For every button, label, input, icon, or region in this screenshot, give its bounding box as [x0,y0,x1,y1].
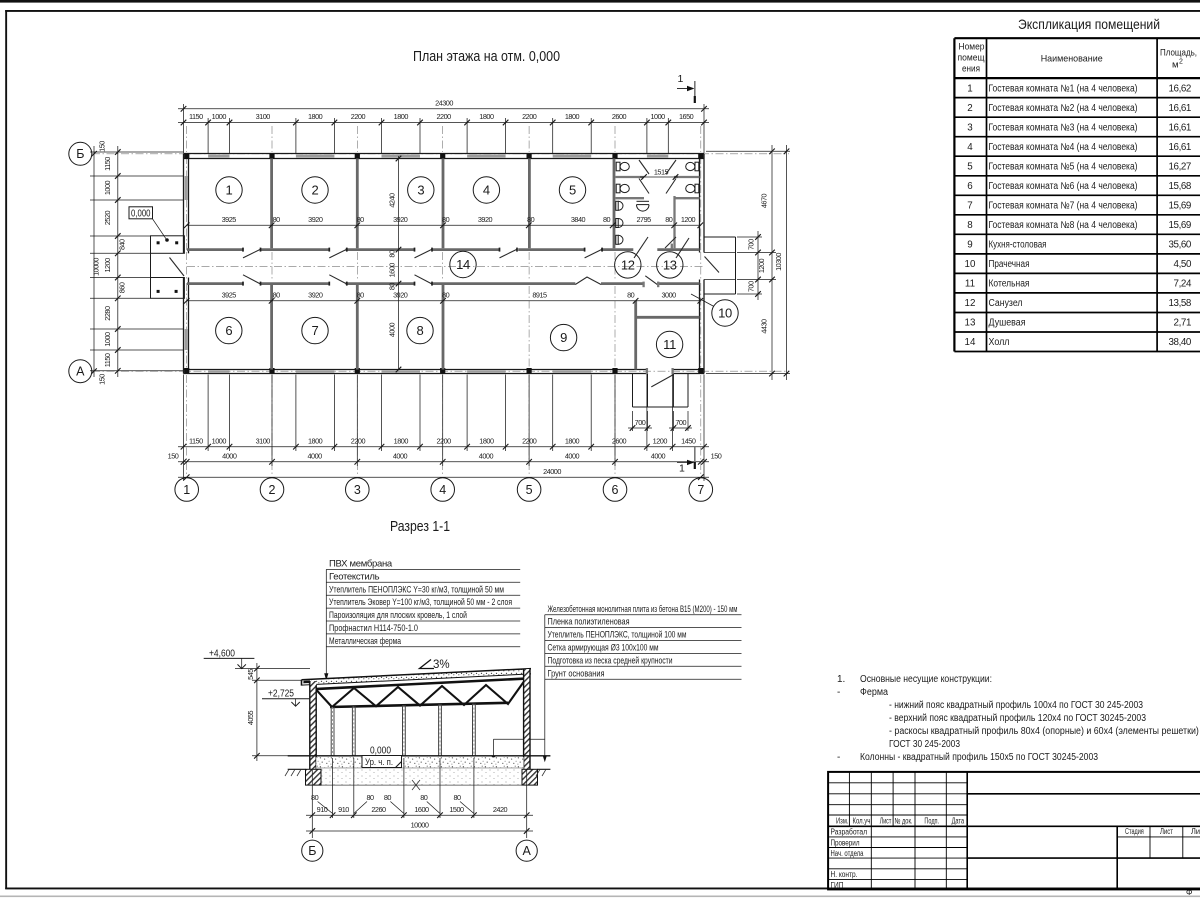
svg-text:1600: 1600 [414,805,429,814]
svg-text:150: 150 [98,374,107,385]
svg-text:4: 4 [439,483,446,497]
svg-text:1800: 1800 [565,436,580,445]
svg-text:1450: 1450 [681,436,696,445]
svg-text:9: 9 [967,240,972,251]
svg-text:80: 80 [627,291,635,300]
svg-text:16,27: 16,27 [1168,161,1191,172]
svg-text:2795: 2795 [636,215,651,224]
svg-text:А: А [523,844,532,858]
svg-text:12: 12 [621,258,635,273]
svg-text:2: 2 [967,103,972,114]
svg-text:1: 1 [679,463,685,475]
svg-text:10000: 10000 [411,821,429,830]
svg-text:4670: 4670 [760,193,769,208]
svg-text:Н. контр.: Н. контр. [831,870,858,879]
svg-text:545: 545 [246,669,255,680]
svg-text:Подготовка из песка средней кр: Подготовка из песка средней крупности [548,655,673,666]
svg-text:+2,725: +2,725 [268,689,294,700]
svg-text:80: 80 [384,793,392,802]
svg-text:5: 5 [526,483,533,497]
svg-text:1800: 1800 [565,112,580,121]
svg-text:2200: 2200 [522,112,537,121]
svg-text:А: А [76,365,85,379]
svg-text:Гостевая комната №5 (на 4 чело: Гостевая комната №5 (на 4 человека) [989,161,1138,172]
svg-text:3925: 3925 [222,291,237,300]
svg-text:Утеплитель Эковер Y=100 кг/м3,: Утеплитель Эковер Y=100 кг/м3, толщиной … [329,597,512,608]
svg-text:6: 6 [225,323,232,338]
svg-text:План этажа на отм. 0,000: План этажа на отм. 0,000 [413,48,560,65]
svg-text:Номер: Номер [959,42,985,53]
svg-text:Гостевая комната №3 (на 4 чело: Гостевая комната №3 (на 4 человека) [989,122,1138,133]
svg-text:ПВХ мембрана: ПВХ мембрана [329,559,393,570]
svg-text:8: 8 [967,220,973,231]
svg-text:4: 4 [483,183,490,198]
svg-text:0,000: 0,000 [131,209,151,220]
svg-text:4000: 4000 [651,452,666,461]
svg-text:10: 10 [965,259,976,270]
svg-text:1150: 1150 [189,112,203,121]
svg-text:80: 80 [366,793,374,802]
svg-text:80: 80 [527,215,535,224]
svg-text:1600: 1600 [387,263,396,278]
svg-text:1.: 1. [837,674,845,685]
svg-text:24000: 24000 [543,467,561,476]
svg-text:1200: 1200 [757,258,766,273]
svg-text:6: 6 [612,483,619,497]
svg-text:80: 80 [453,793,461,802]
svg-text:2200: 2200 [436,436,451,445]
svg-text:3925: 3925 [222,215,237,224]
svg-text:700: 700 [747,281,756,292]
svg-text:3840: 3840 [571,215,586,224]
svg-text:1150: 1150 [103,353,112,367]
svg-text:2520: 2520 [103,210,112,225]
svg-text:150: 150 [98,141,107,152]
svg-text:1000: 1000 [103,180,112,195]
svg-text:0,000: 0,000 [370,746,391,757]
svg-text:Основные несущие конструкции:: Основные несущие конструкции: [860,674,992,685]
svg-text:Утеплитель ПЕНОПЛЭКС, толщиной: Утеплитель ПЕНОПЛЭКС, толщиной 100 мм [548,630,687,641]
svg-text:3100: 3100 [256,436,271,445]
svg-text:Колонны - квадратный профиль 1: Колонны - квадратный профиль 150х5 по ГО… [860,751,1098,763]
svg-text:Ур. ч. п.: Ур. ч. п. [365,757,393,767]
svg-text:4,50: 4,50 [1174,259,1192,270]
svg-text:1: 1 [183,483,190,497]
svg-text:Ферма: Ферма [860,687,888,698]
svg-text:4000: 4000 [387,322,396,337]
svg-text:150: 150 [168,452,179,461]
svg-text:Б: Б [308,844,316,858]
svg-text:Гостевая комната №1 (на 4 чело: Гостевая комната №1 (на 4 человека) [989,83,1138,94]
svg-text:38,40: 38,40 [1168,337,1191,348]
svg-text:5: 5 [967,161,973,172]
svg-text:2,71: 2,71 [1174,318,1191,329]
svg-text:4055: 4055 [246,710,255,725]
svg-text:2280: 2280 [103,306,112,321]
svg-text:Лист: Лист [1160,827,1173,836]
svg-text:35,60: 35,60 [1168,240,1191,251]
svg-text:1200: 1200 [103,258,112,273]
svg-text:910: 910 [317,805,328,814]
svg-text:8: 8 [417,323,424,338]
svg-text:15,69: 15,69 [1168,220,1191,231]
svg-text:Дата: Дата [952,817,965,826]
svg-text:Кухня-столовая: Кухня-столовая [989,240,1047,251]
svg-text:9: 9 [560,330,567,345]
svg-text:помещ: помещ [958,53,985,64]
svg-text:1000: 1000 [103,332,112,347]
svg-text:10300: 10300 [774,253,783,271]
svg-text:1000: 1000 [650,112,665,121]
svg-text:Геотекстиль: Геотекстиль [329,571,380,582]
svg-text:14: 14 [965,337,976,348]
svg-text:1800: 1800 [479,112,494,121]
svg-text:14: 14 [456,257,470,272]
svg-text:1200: 1200 [653,436,668,445]
svg-text:13: 13 [965,318,976,329]
svg-text:7,24: 7,24 [1174,279,1192,290]
svg-text:1650: 1650 [679,112,694,121]
svg-text:Изм.: Изм. [836,817,848,826]
svg-text:15,69: 15,69 [1168,200,1191,211]
svg-text:10000: 10000 [92,258,101,276]
svg-text:150: 150 [711,452,722,461]
svg-text:700: 700 [635,418,646,427]
svg-text:3920: 3920 [393,291,408,300]
svg-text:1000: 1000 [212,436,227,445]
svg-text:10: 10 [718,306,732,321]
svg-text:860: 860 [118,282,127,293]
svg-text:Пароизоляция для плоских крове: Пароизоляция для плоских кровель, 1 слой [329,610,467,621]
svg-text:3%: 3% [433,659,450,671]
svg-text:3920: 3920 [308,291,323,300]
svg-text:2200: 2200 [522,436,537,445]
svg-text:4000: 4000 [222,452,237,461]
svg-text:4000: 4000 [479,452,494,461]
svg-text:Проверил: Проверил [831,838,860,847]
svg-text:4: 4 [967,142,973,153]
svg-text:Душевая: Душевая [989,318,1026,329]
svg-text:- верхний пояс квадратный проф: - верхний пояс квадратный профиль 120х4 … [889,712,1146,724]
svg-text:1150: 1150 [189,436,203,445]
svg-text:80: 80 [273,215,281,224]
svg-text:- нижний пояс квадратный профи: - нижний пояс квадратный профиль 100х4 п… [889,699,1143,711]
svg-text:1800: 1800 [394,112,409,121]
svg-text:1150: 1150 [103,157,112,171]
svg-text:4000: 4000 [565,452,580,461]
svg-text:Профнастил Н114-750-1.0: Профнастил Н114-750-1.0 [329,623,418,634]
svg-text:80: 80 [357,291,365,300]
svg-text:1800: 1800 [479,436,494,445]
svg-text:2200: 2200 [436,112,451,121]
svg-text:Железобетонная монолитная плит: Железобетонная монолитная плита из бетон… [548,604,738,615]
svg-text:7: 7 [312,323,319,338]
svg-text:м: м [1172,60,1179,71]
svg-text:80: 80 [357,215,365,224]
svg-text:Холл: Холл [989,337,1010,348]
svg-text:80: 80 [603,215,611,224]
svg-text:1800: 1800 [308,436,323,445]
svg-text:ГОСТ 30 245-2003: ГОСТ 30 245-2003 [889,739,960,750]
svg-text:Наименование: Наименование [1041,54,1103,65]
svg-text:4000: 4000 [307,452,322,461]
svg-text:4240: 4240 [387,193,396,208]
svg-text:Гостевая комната №6 (на 4 чело: Гостевая комната №6 (на 4 человека) [989,181,1138,192]
svg-text:Подп.: Подп. [924,817,939,826]
svg-text:24300: 24300 [435,99,453,108]
svg-text:4000: 4000 [393,452,408,461]
svg-text:3000: 3000 [661,291,676,300]
svg-text:Стадия: Стадия [1125,827,1144,836]
svg-text:13,58: 13,58 [1168,298,1191,309]
svg-text:Сетка армирующая Ø3 100х100 мм: Сетка армирующая Ø3 100х100 мм [548,643,659,654]
svg-text:700: 700 [675,418,686,427]
svg-text:2: 2 [312,183,319,198]
svg-text:1515: 1515 [654,168,669,177]
svg-text:6: 6 [967,181,973,192]
svg-text:Санузел: Санузел [989,298,1023,309]
svg-text:Разрез 1-1: Разрез 1-1 [390,518,450,535]
svg-text:1800: 1800 [308,112,323,121]
svg-text:Утеплитель ПЕНОПЛЭКС Y=30 кг/м: Утеплитель ПЕНОПЛЭКС Y=30 кг/м3, толщино… [329,584,504,595]
svg-text:Кол.уч: Кол.уч [853,817,871,826]
svg-text:3: 3 [417,183,424,198]
svg-text:Экспликация помещений: Экспликация помещений [1018,17,1160,32]
svg-text:Ли: Ли [1191,827,1200,836]
svg-text:1: 1 [226,183,233,198]
svg-text:15,68: 15,68 [1168,181,1191,192]
svg-text:16,61: 16,61 [1168,103,1191,114]
svg-text:№ док.: № док. [894,817,912,826]
svg-text:Лист: Лист [880,817,892,826]
svg-text:2260: 2260 [371,805,386,814]
svg-text:4430: 4430 [760,319,769,334]
svg-text:80: 80 [665,215,673,224]
svg-text:12: 12 [965,298,976,309]
svg-text:Гостевая комната №4 (на 4 чело: Гостевая комната №4 (на 4 человека) [989,142,1138,153]
svg-text:8915: 8915 [532,291,547,300]
svg-text:7: 7 [967,200,972,211]
svg-text:Пленка полиэтиленовая: Пленка полиэтиленовая [548,617,630,628]
svg-text:5: 5 [569,183,576,198]
svg-text:3920: 3920 [478,215,493,224]
svg-text:Разработал: Разработал [831,828,868,837]
svg-text:3: 3 [354,483,361,497]
svg-text:1000: 1000 [212,112,227,121]
svg-text:3100: 3100 [256,112,271,121]
svg-text:910: 910 [338,805,349,814]
svg-text:Б: Б [76,147,84,161]
svg-text:2200: 2200 [351,112,366,121]
svg-text:Грунт основания: Грунт основания [548,668,605,679]
svg-text:16,62: 16,62 [1168,83,1191,94]
svg-text:11: 11 [663,337,676,352]
svg-text:11: 11 [965,279,975,290]
svg-text:16,61: 16,61 [1168,122,1191,133]
svg-text:3: 3 [967,122,973,133]
svg-text:Гостевая комната №7 (на 4 чело: Гостевая комната №7 (на 4 человека) [989,200,1138,211]
svg-text:700: 700 [747,239,756,250]
svg-text:+4,600: +4,600 [209,649,235,660]
svg-text:3920: 3920 [393,215,408,224]
svg-text:1800: 1800 [394,436,409,445]
svg-text:-: - [837,687,840,698]
svg-text:80: 80 [420,793,428,802]
svg-text:80: 80 [387,283,396,291]
svg-text:1: 1 [678,73,684,85]
svg-text:Котельная: Котельная [989,279,1030,290]
svg-text:ения: ения [962,64,980,75]
svg-text:2420: 2420 [493,805,508,814]
svg-text:Прачечная: Прачечная [989,259,1030,270]
svg-text:-: - [837,752,840,763]
svg-text:ГИП: ГИП [831,881,844,890]
svg-text:2600: 2600 [612,436,627,445]
svg-text:80: 80 [442,291,450,300]
svg-text:80: 80 [387,250,396,258]
svg-text:Гостевая комната №8 (на 4 чело: Гостевая комната №8 (на 4 человека) [989,220,1138,231]
svg-text:3920: 3920 [308,215,323,224]
svg-text:1500: 1500 [449,805,464,814]
svg-text:Площадь,: Площадь, [1160,48,1197,59]
svg-text:1: 1 [967,83,972,94]
svg-text:80: 80 [442,215,450,224]
svg-text:1200: 1200 [681,215,696,224]
svg-text:2200: 2200 [351,436,366,445]
svg-text:16,61: 16,61 [1168,142,1191,153]
svg-text:840: 840 [118,239,127,250]
svg-text:2: 2 [269,483,276,497]
svg-text:- раскосы квадратный профиль 8: - раскосы квадратный профиль 80х4 (опорн… [889,725,1200,737]
svg-text:Гостевая комната №2 (на 4 чело: Гостевая комната №2 (на 4 человека) [989,103,1138,114]
svg-text:Металлическая ферма: Металлическая ферма [329,636,402,647]
svg-text:2600: 2600 [612,112,627,121]
svg-text:Нач. отдела: Нач. отдела [831,849,864,858]
svg-text:2: 2 [1179,59,1183,66]
svg-text:7: 7 [697,483,704,497]
svg-text:80: 80 [273,291,281,300]
svg-text:13: 13 [663,258,677,273]
